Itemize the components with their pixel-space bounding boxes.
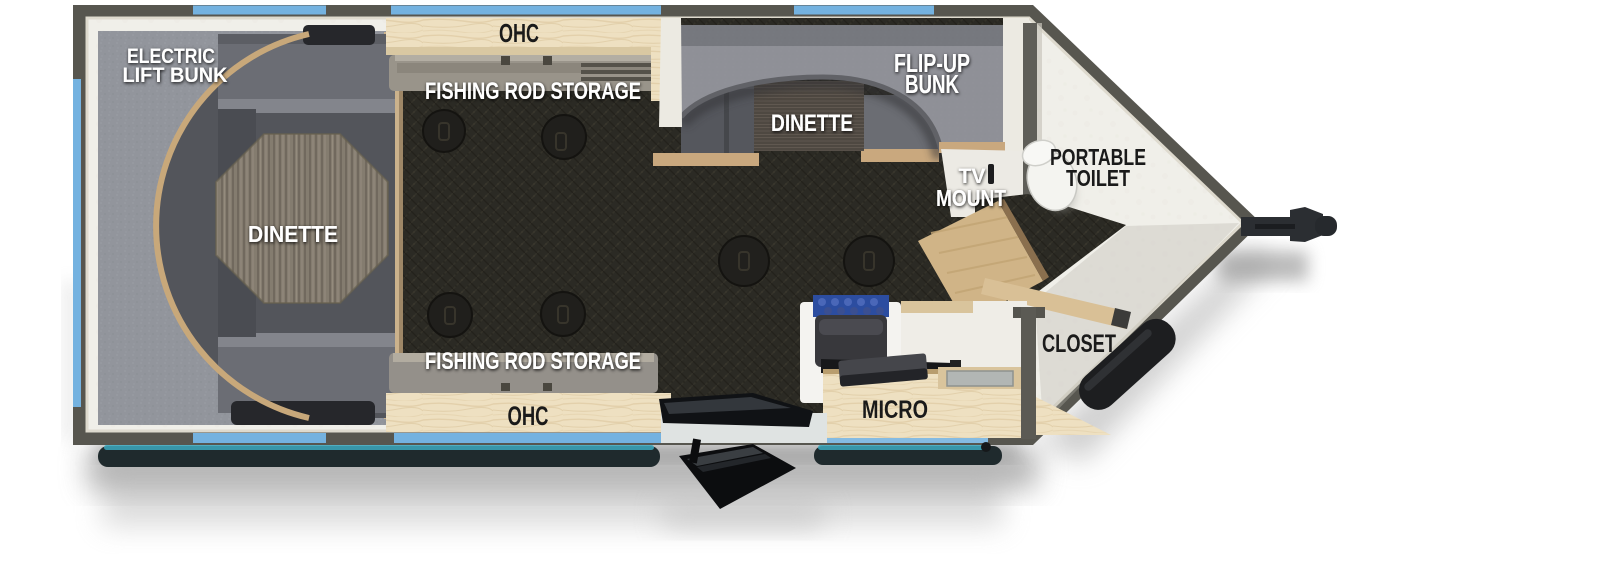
svg-text:TOILET: TOILET [1066, 165, 1130, 191]
svg-text:MICRO: MICRO [862, 396, 928, 424]
svg-text:BUNK: BUNK [905, 69, 959, 99]
svg-text:OHC: OHC [499, 18, 539, 48]
svg-text:LIFT BUNK: LIFT BUNK [123, 64, 228, 87]
svg-text:OHC: OHC [508, 401, 549, 431]
svg-text:FISHING ROD STORAGE: FISHING ROD STORAGE [425, 348, 641, 375]
svg-text:DINETTE: DINETTE [771, 110, 853, 137]
svg-text:FISHING ROD STORAGE: FISHING ROD STORAGE [425, 78, 641, 105]
svg-text:DINETTE: DINETTE [248, 221, 338, 247]
svg-text:CLOSET: CLOSET [1042, 330, 1116, 358]
svg-text:MOUNT: MOUNT [936, 185, 1006, 211]
